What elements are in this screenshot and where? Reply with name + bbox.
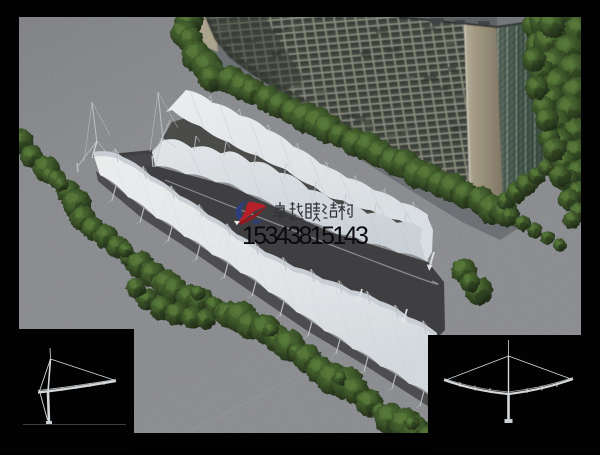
svg-text:15343815143: 15343815143	[242, 222, 368, 250]
